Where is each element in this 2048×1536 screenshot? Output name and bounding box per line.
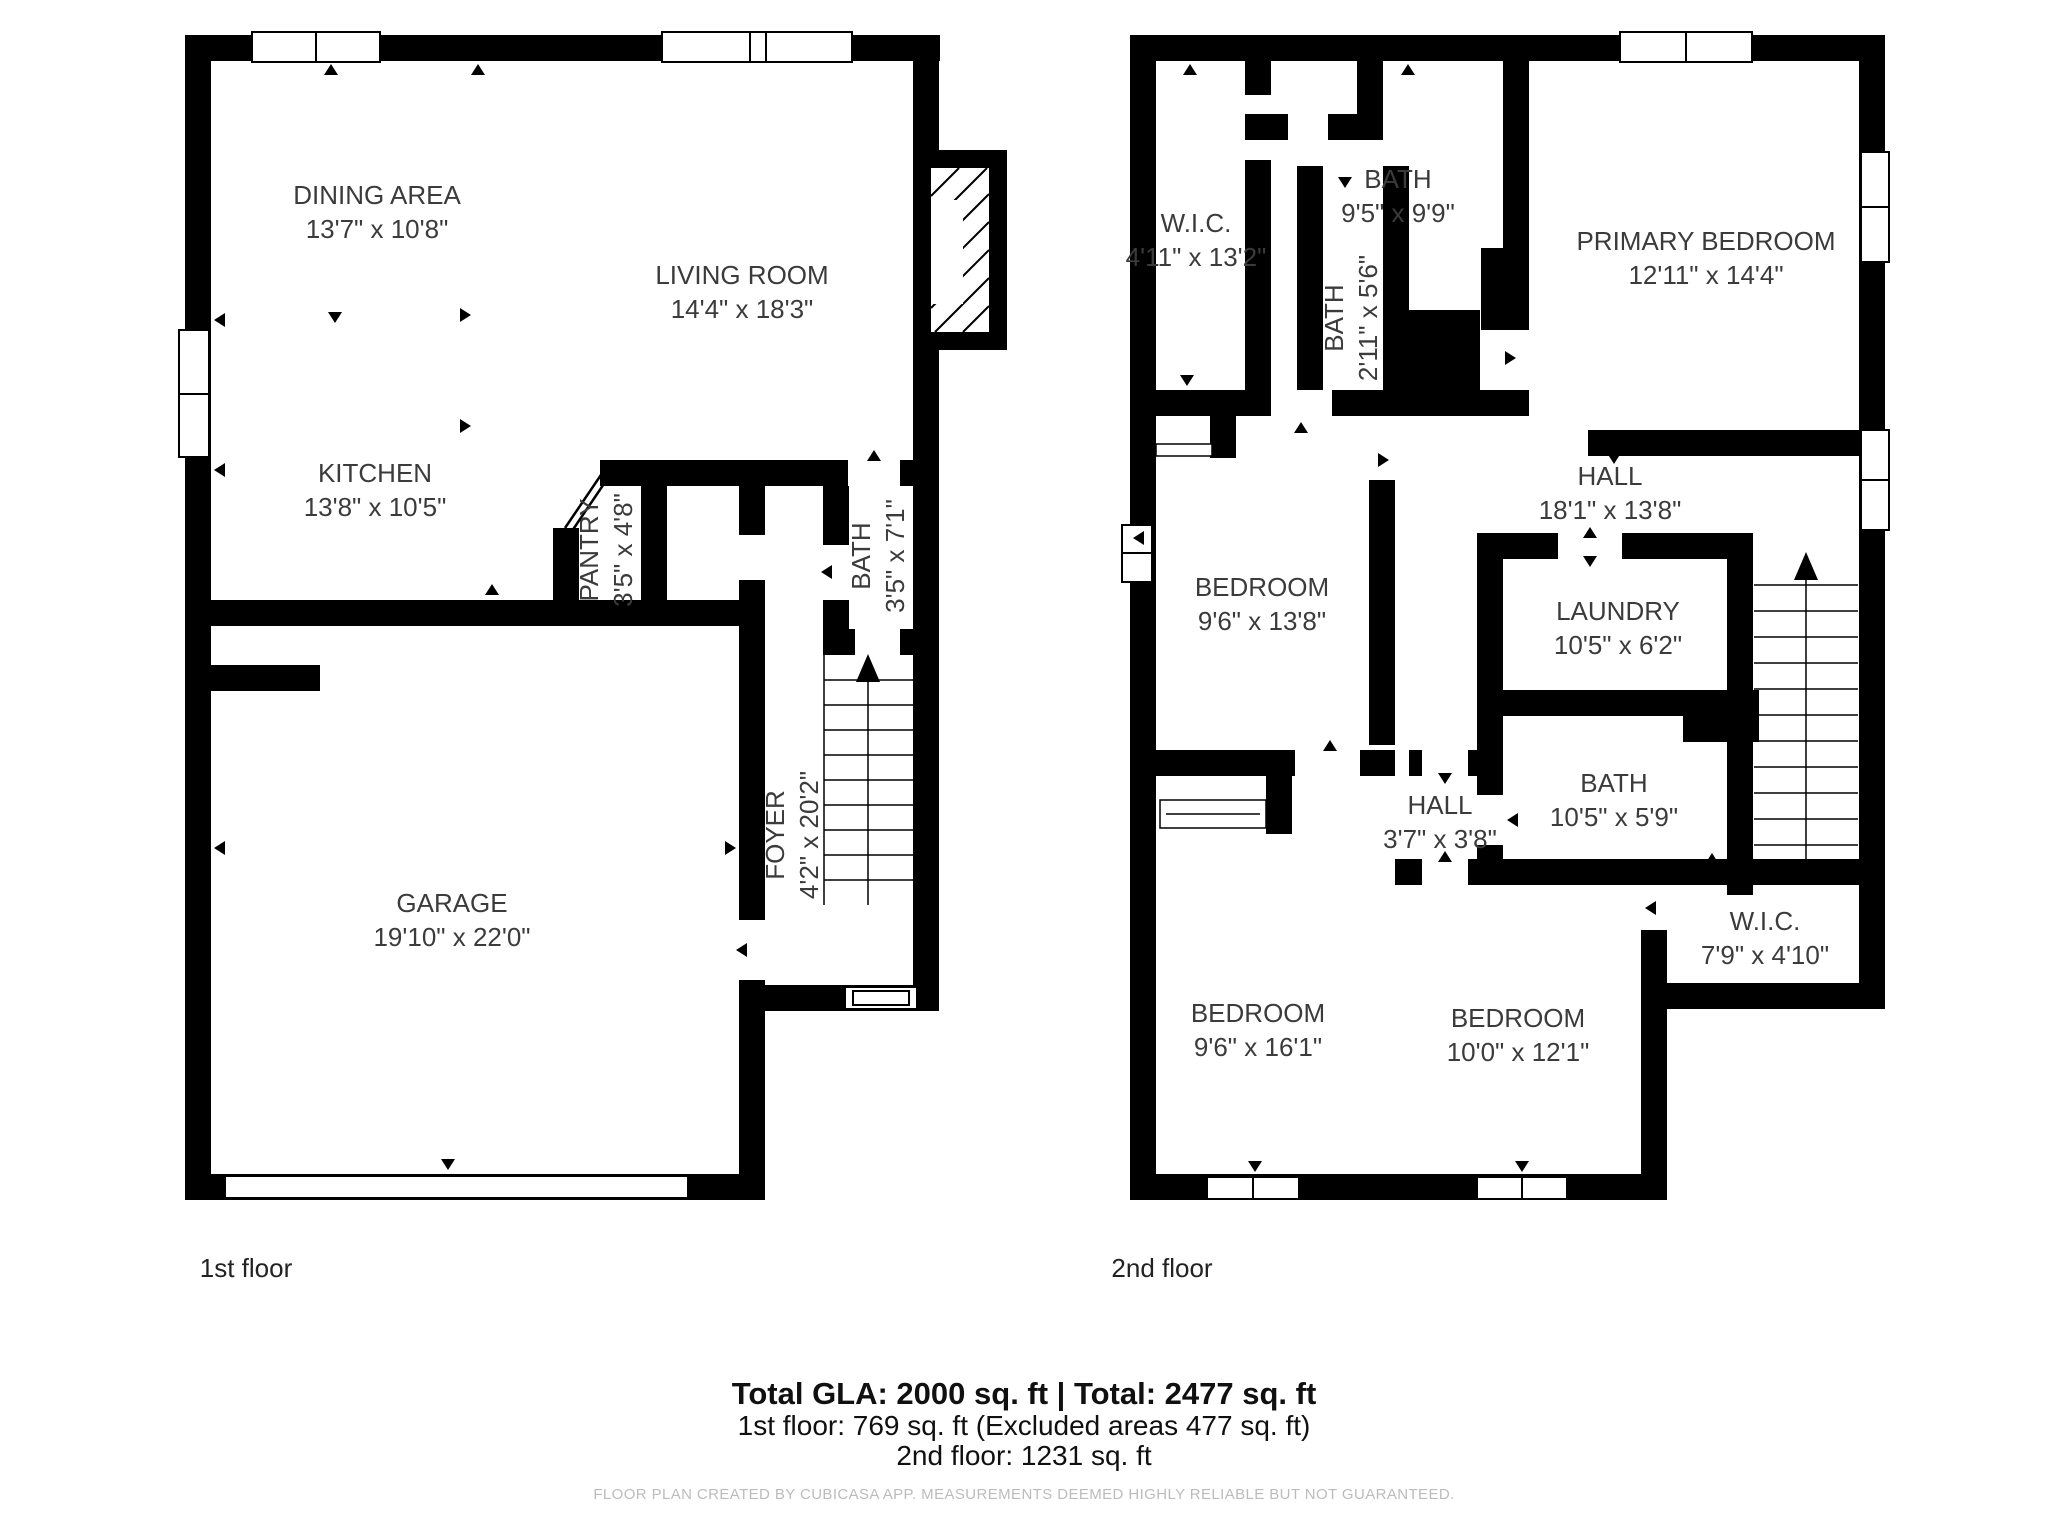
- room-dims: 9'6" x 13'8": [1195, 604, 1329, 638]
- room-name: BEDROOM: [1447, 1001, 1590, 1035]
- room-name: HALL: [1539, 459, 1682, 493]
- floorplan-page: DINING AREA 13'7" x 10'8" LIVING ROOM 14…: [0, 0, 2048, 1536]
- room-label-bedroom-3: BEDROOM 10'0" x 12'1": [1447, 1001, 1590, 1069]
- room-name: BEDROOM: [1195, 570, 1329, 604]
- room-dims: 10'0" x 12'1": [1447, 1035, 1590, 1069]
- room-name: DINING AREA: [293, 178, 461, 212]
- summary-first-floor: 1st floor: 769 sq. ft (Excluded areas 47…: [0, 1410, 2048, 1442]
- room-dims: 3'7" x 3'8": [1383, 822, 1497, 856]
- room-dims: 2'11" x 5'6": [1351, 255, 1385, 381]
- room-dims: 3'5" x 4'8": [606, 493, 640, 607]
- room-name: GARAGE: [373, 886, 530, 920]
- room-label-dining-area: DINING AREA 13'7" x 10'8": [293, 178, 461, 246]
- summary-second-floor: 2nd floor: 1231 sq. ft: [0, 1440, 2048, 1472]
- room-dims: 4'2" x 20'2": [792, 771, 826, 899]
- room-name: KITCHEN: [304, 456, 447, 490]
- room-name: PANTRY: [572, 493, 606, 607]
- room-label-laundry: LAUNDRY 10'5" x 6'2": [1554, 594, 1682, 662]
- room-dims: 14'4" x 18'3": [655, 292, 828, 326]
- room-label-kitchen: KITCHEN 13'8" x 10'5": [304, 456, 447, 524]
- room-dims: 9'6" x 16'1": [1191, 1030, 1325, 1064]
- room-dims: 10'5" x 6'2": [1554, 628, 1682, 662]
- garage-door: [225, 1176, 688, 1198]
- room-label-foyer: FOYER 4'2" x 20'2": [758, 771, 826, 899]
- room-label-bath-small: BATH 2'11" x 5'6": [1317, 255, 1385, 381]
- room-label-bedroom-1: BEDROOM 9'6" x 13'8": [1195, 570, 1329, 638]
- room-name: LIVING ROOM: [655, 258, 828, 292]
- room-dims: 19'10" x 22'0": [373, 920, 530, 954]
- room-name: BEDROOM: [1191, 996, 1325, 1030]
- room-dims: 3'5" x 7'1": [878, 499, 912, 613]
- room-label-bath-main: BATH 9'5" x 9'9": [1341, 162, 1455, 230]
- room-label-pantry: PANTRY 3'5" x 4'8": [572, 493, 640, 607]
- footer-disclaimer: FLOOR PLAN CREATED BY CUBICASA APP. MEAS…: [0, 1486, 2048, 1503]
- caption-first-floor: 1st floor: [200, 1253, 293, 1284]
- stairs-up-arrow: [1794, 552, 1818, 580]
- room-name: PRIMARY BEDROOM: [1576, 224, 1835, 258]
- closet-slider: [1156, 444, 1212, 456]
- room-dims: 12'11" x 14'4": [1576, 258, 1835, 292]
- room-name: LAUNDRY: [1554, 594, 1682, 628]
- summary-total: Total GLA: 2000 sq. ft | Total: 2477 sq.…: [0, 1376, 2048, 1412]
- room-label-wic-lower: W.I.C. 7'9" x 4'10": [1701, 904, 1829, 972]
- room-label-garage: GARAGE 19'10" x 22'0": [373, 886, 530, 954]
- room-name: HALL: [1383, 788, 1497, 822]
- room-dims: 4'11" x 13'2": [1126, 240, 1267, 274]
- room-name: FOYER: [758, 771, 792, 899]
- room-name: BATH: [844, 499, 878, 613]
- room-dims: 10'5" x 5'9": [1550, 800, 1678, 834]
- room-label-bedroom-2: BEDROOM 9'6" x 16'1": [1191, 996, 1325, 1064]
- fireplace: [913, 150, 1007, 350]
- room-name: BATH: [1317, 255, 1351, 381]
- room-label-wic-upper: W.I.C. 4'11" x 13'2": [1126, 206, 1267, 274]
- room-dims: 13'8" x 10'5": [304, 490, 447, 524]
- room-label-hall-large: HALL 18'1" x 13'8": [1539, 459, 1682, 527]
- caption-second-floor: 2nd floor: [1111, 1253, 1212, 1284]
- second-floor-stairs: [1754, 552, 1858, 859]
- room-dims: 9'5" x 9'9": [1341, 196, 1455, 230]
- room-dims: 18'1" x 13'8": [1539, 493, 1682, 527]
- room-label-living-room: LIVING ROOM 14'4" x 18'3": [655, 258, 828, 326]
- room-name: BATH: [1550, 766, 1678, 800]
- stairs-up-arrow: [856, 654, 880, 682]
- room-label-hall-small: HALL 3'7" x 3'8": [1383, 788, 1497, 856]
- room-label-primary-bedroom: PRIMARY BEDROOM 12'11" x 14'4": [1576, 224, 1835, 292]
- first-floor-stairs: [824, 654, 913, 905]
- room-dims: 7'9" x 4'10": [1701, 938, 1829, 972]
- room-name: W.I.C.: [1126, 206, 1267, 240]
- room-dims: 13'7" x 10'8": [293, 212, 461, 246]
- room-label-bath-first: BATH 3'5" x 7'1": [844, 499, 912, 613]
- room-name: W.I.C.: [1701, 904, 1829, 938]
- room-name: BATH: [1341, 162, 1455, 196]
- room-label-bath-hall: BATH 10'5" x 5'9": [1550, 766, 1678, 834]
